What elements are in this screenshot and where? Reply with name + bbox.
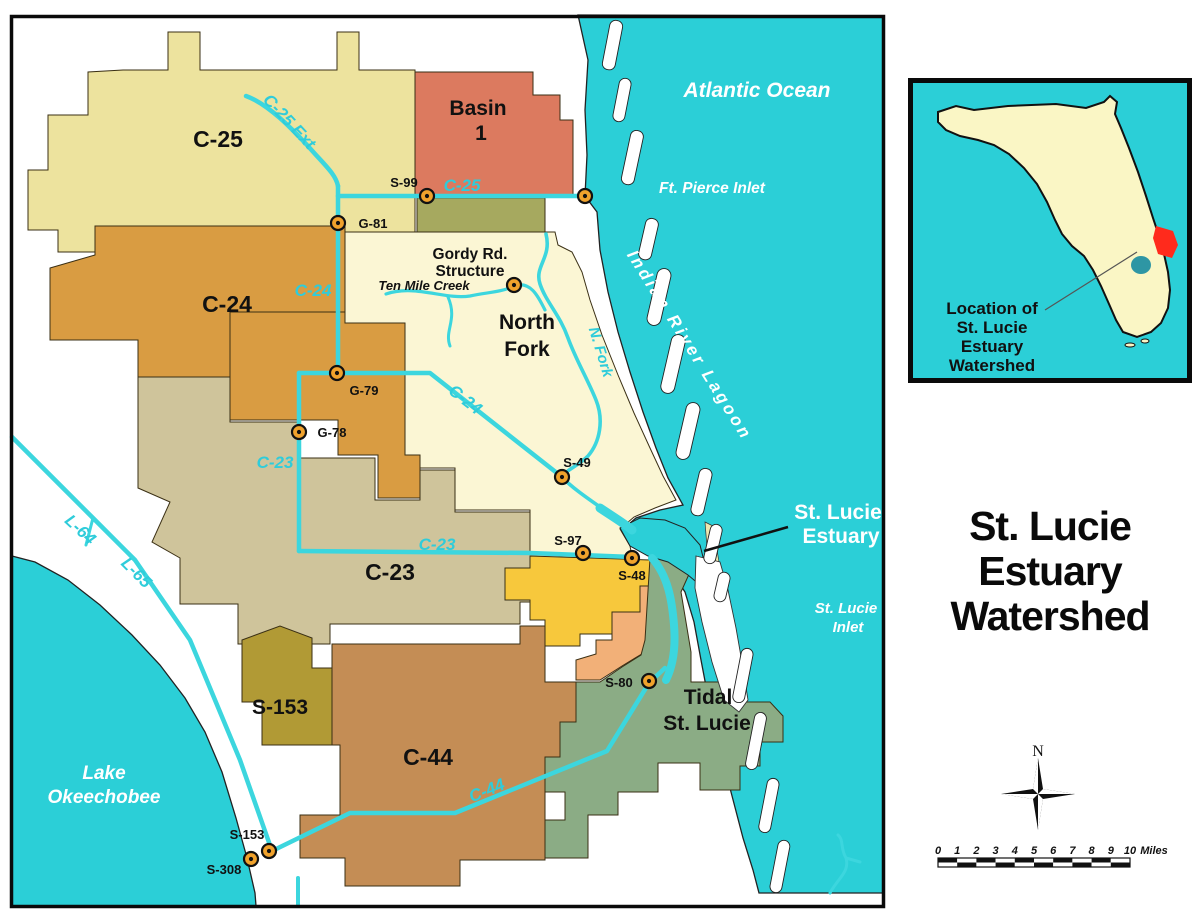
label-lake-line1: Lake bbox=[82, 763, 126, 784]
label-basin-c23: C-23 bbox=[365, 559, 415, 585]
structure-s49-marker bbox=[555, 470, 569, 484]
map-title-line3: Watershed bbox=[902, 594, 1198, 639]
basin-olive-strip bbox=[417, 198, 545, 232]
inset-caption-line4: Watershed bbox=[949, 356, 1035, 375]
label-s153-structure: S-153 bbox=[230, 827, 265, 842]
florida-keys-2 bbox=[1141, 339, 1149, 343]
structure-g78-marker bbox=[292, 425, 306, 439]
label-lake-line2: Okeechobee bbox=[48, 787, 161, 808]
label-s48: S-48 bbox=[618, 568, 645, 583]
label-canal-c25: C-25 bbox=[444, 176, 481, 195]
label-tidal-line2: St. Lucie bbox=[663, 712, 751, 735]
label-canal-c23-lower: C-23 bbox=[419, 535, 456, 554]
label-estuary-line2: Estuary bbox=[802, 525, 879, 548]
label-ten-mile-creek: Ten Mile Creek bbox=[378, 278, 470, 293]
scale-bar-numbers: 0 1 2 3 4 5 6 7 8 9 10 Miles bbox=[935, 845, 1168, 857]
label-basin-1-line2: 1 bbox=[475, 122, 487, 145]
map-title-line1: St. Lucie bbox=[902, 504, 1198, 549]
structure-ft-pierce-marker bbox=[578, 189, 592, 203]
inset-caption-line3: Estuary bbox=[961, 337, 1024, 356]
structure-g81-marker bbox=[331, 216, 345, 230]
svg-text:2: 2 bbox=[972, 845, 979, 857]
main-map: C-25 Basin 1 C-24 North Fork C-23 S-153 … bbox=[0, 0, 900, 920]
map-title-line2: Estuary bbox=[902, 549, 1198, 594]
compass-rose: N bbox=[998, 742, 1078, 837]
structure-s99-marker bbox=[420, 189, 434, 203]
svg-text:7: 7 bbox=[1069, 845, 1076, 857]
svg-text:0: 0 bbox=[935, 845, 942, 857]
structure-s97-marker bbox=[576, 546, 590, 560]
structure-s48-marker bbox=[625, 551, 639, 565]
scale-bar: 0 1 2 3 4 5 6 7 8 9 10 Miles bbox=[930, 840, 1190, 880]
svg-text:8: 8 bbox=[1089, 845, 1096, 857]
scale-bar-segments bbox=[938, 858, 1130, 867]
map-title: St. Lucie Estuary Watershed bbox=[902, 504, 1198, 639]
svg-text:9: 9 bbox=[1108, 845, 1115, 857]
label-g78: G-78 bbox=[318, 425, 347, 440]
label-s308: S-308 bbox=[207, 862, 242, 877]
label-basin-c44: C-44 bbox=[403, 744, 453, 770]
label-north-fork-line2: Fork bbox=[504, 338, 550, 361]
florida-keys bbox=[1125, 343, 1135, 347]
structure-s153-marker bbox=[262, 844, 276, 858]
label-s97: S-97 bbox=[554, 533, 581, 548]
svg-text:1: 1 bbox=[954, 845, 960, 857]
inset-caption-line1: Location of bbox=[946, 299, 1038, 318]
label-s49: S-49 bbox=[563, 455, 590, 470]
compass-north-label: N bbox=[1032, 743, 1044, 760]
svg-text:6: 6 bbox=[1050, 845, 1057, 857]
label-north-fork-line1: North bbox=[499, 311, 555, 334]
label-estuary-line1: St. Lucie bbox=[794, 501, 882, 524]
label-basin-s153: S-153 bbox=[252, 696, 308, 719]
label-st-lucie-inlet-line1: St. Lucie bbox=[815, 600, 878, 617]
structure-g79-marker bbox=[330, 366, 344, 380]
svg-text:10: 10 bbox=[1124, 845, 1137, 857]
svg-text:3: 3 bbox=[993, 845, 999, 857]
structure-s308-marker bbox=[244, 852, 258, 866]
label-s80: S-80 bbox=[605, 675, 632, 690]
florida-inset: Location of St. Lucie Estuary Watershed bbox=[908, 78, 1192, 383]
label-ft-pierce-inlet: Ft. Pierce Inlet bbox=[659, 180, 766, 197]
scale-bar-unit: Miles bbox=[1140, 845, 1168, 857]
label-g81: G-81 bbox=[359, 216, 388, 231]
st-lucie-watershed-map-page: C-25 Basin 1 C-24 North Fork C-23 S-153 … bbox=[0, 0, 1200, 920]
label-atlantic-ocean: Atlantic Ocean bbox=[682, 79, 830, 102]
label-st-lucie-inlet-line2: Inlet bbox=[833, 619, 865, 636]
structure-s80-marker bbox=[642, 674, 656, 688]
label-canal-c23-upper: C-23 bbox=[257, 453, 294, 472]
svg-text:5: 5 bbox=[1031, 845, 1038, 857]
svg-text:4: 4 bbox=[1011, 845, 1018, 857]
label-s99: S-99 bbox=[390, 175, 417, 190]
label-tidal-line1: Tidal bbox=[684, 686, 733, 709]
label-basin-c24: C-24 bbox=[202, 291, 252, 317]
label-basin-1-line1: Basin bbox=[449, 97, 506, 120]
label-canal-c24-upper: C-24 bbox=[295, 281, 332, 300]
structure-gordy-marker bbox=[507, 278, 521, 292]
label-g79: G-79 bbox=[350, 383, 379, 398]
inset-caption-line2: St. Lucie bbox=[957, 318, 1028, 337]
label-gordy-line1: Gordy Rd. bbox=[433, 246, 508, 263]
compass-star-facets bbox=[1001, 758, 1075, 830]
lake-okeechobee-inset bbox=[1131, 256, 1151, 274]
label-basin-c25: C-25 bbox=[193, 126, 243, 152]
